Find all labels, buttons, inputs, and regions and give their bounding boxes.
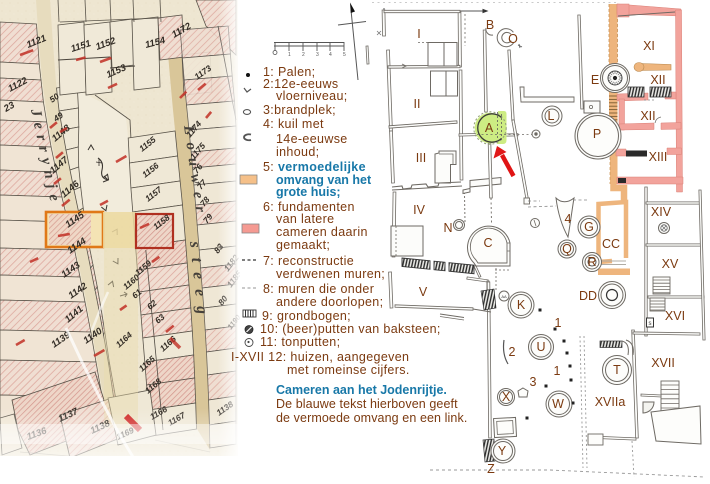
svg-text:AA: AA xyxy=(501,294,507,299)
svg-text:R: R xyxy=(587,255,596,269)
svg-text:I: I xyxy=(417,27,420,41)
svg-text:4: 4 xyxy=(329,52,332,58)
svg-text:XV: XV xyxy=(662,257,679,271)
svg-text:G: G xyxy=(584,220,594,234)
svg-text:A: A xyxy=(485,121,494,135)
svg-text:L: L xyxy=(548,109,555,123)
svg-text:3: 3 xyxy=(530,375,537,389)
svg-text:C: C xyxy=(483,236,492,250)
svg-text:T: T xyxy=(613,363,621,377)
svg-text:2: 2 xyxy=(509,345,516,359)
svg-text:E: E xyxy=(591,73,599,87)
svg-text:O: O xyxy=(508,32,518,46)
svg-text:IV: IV xyxy=(413,203,425,217)
svg-text:V: V xyxy=(419,285,428,299)
svg-text:XII: XII xyxy=(640,109,655,123)
svg-text:5: 5 xyxy=(343,52,346,58)
svg-text:DD: DD xyxy=(579,289,597,303)
svg-text:1: 1 xyxy=(554,364,561,378)
svg-text:1: 1 xyxy=(555,316,562,330)
svg-text:XIII: XIII xyxy=(649,150,668,164)
svg-text:B: B xyxy=(486,18,494,32)
svg-text:Y: Y xyxy=(498,444,507,458)
svg-text:Z: Z xyxy=(487,462,495,476)
svg-text:K: K xyxy=(517,298,526,312)
svg-text:4: 4 xyxy=(565,212,572,226)
svg-text:XI: XI xyxy=(643,39,655,53)
svg-text:XVII: XVII xyxy=(651,356,675,370)
svg-text:W: W xyxy=(552,397,564,411)
svg-text:Q: Q xyxy=(562,242,572,256)
svg-text:1: 1 xyxy=(288,52,291,58)
svg-text:XII: XII xyxy=(650,73,665,87)
svg-text:CC: CC xyxy=(602,237,620,251)
svg-text:II: II xyxy=(414,97,421,111)
svg-text:XVIIa: XVIIa xyxy=(595,395,626,409)
svg-text:U: U xyxy=(536,340,545,354)
svg-text:XVI: XVI xyxy=(665,309,685,323)
svg-text:P: P xyxy=(593,127,601,141)
svg-text:3: 3 xyxy=(316,52,319,58)
svg-text:XIV: XIV xyxy=(651,205,672,219)
svg-text:s: s xyxy=(649,321,652,327)
svg-text:III: III xyxy=(416,151,426,165)
svg-text:X: X xyxy=(502,390,511,404)
svg-text:N: N xyxy=(443,221,452,235)
svg-text:2: 2 xyxy=(302,52,305,58)
